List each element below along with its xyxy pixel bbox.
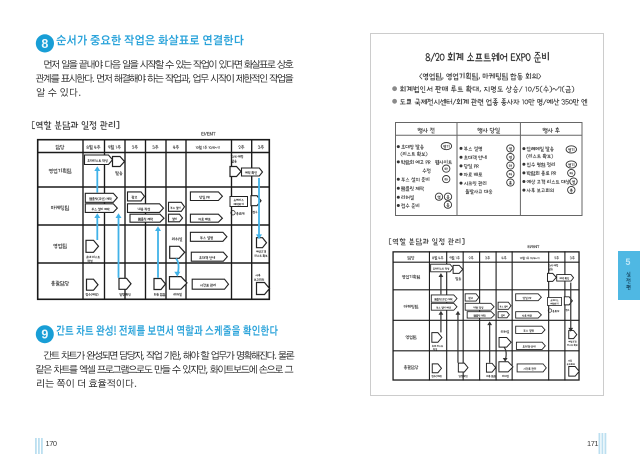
svg-text:170: 170 [46, 439, 57, 448]
svg-text:5: 5 [626, 257, 631, 267]
svg-text:9: 9 [41, 328, 48, 342]
svg-text:8: 8 [41, 37, 48, 51]
svg-text:171: 171 [587, 439, 598, 448]
